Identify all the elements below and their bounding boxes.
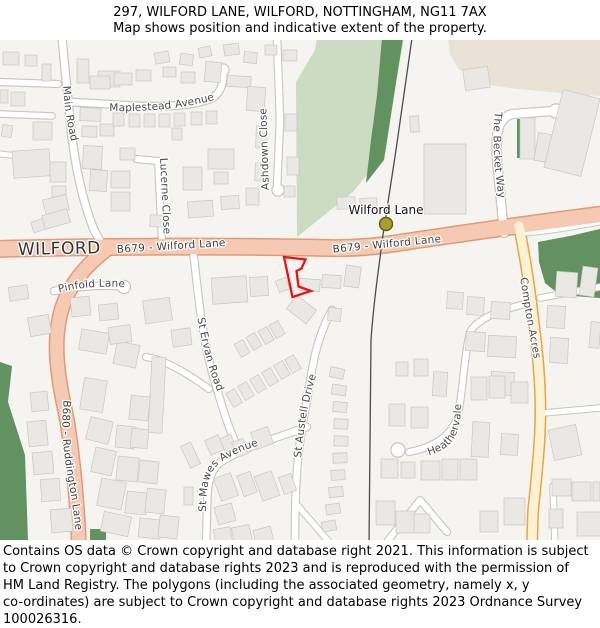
- building: [191, 112, 202, 125]
- building: [223, 43, 239, 56]
- building: [221, 196, 240, 210]
- footer-line: to Crown copyright and database rights 2…: [3, 560, 600, 577]
- building: [33, 122, 52, 140]
- building: [467, 297, 485, 316]
- building: [463, 66, 491, 90]
- building: [331, 384, 346, 396]
- building: [184, 487, 193, 505]
- building: [0, 90, 8, 103]
- building: [287, 157, 299, 175]
- building: [211, 276, 248, 304]
- cul-de-sac: [392, 444, 405, 457]
- building: [100, 124, 114, 136]
- building: [549, 509, 563, 528]
- building: [97, 478, 127, 510]
- building: [8, 285, 29, 302]
- building: [171, 328, 192, 347]
- building: [432, 372, 447, 397]
- copyright-footer: Contains OS data © Crown copyright and d…: [0, 540, 600, 628]
- building: [136, 70, 151, 81]
- building: [329, 486, 344, 497]
- building: [179, 53, 193, 66]
- building: [206, 111, 217, 124]
- building: [334, 419, 349, 430]
- building: [424, 144, 466, 214]
- building: [138, 460, 159, 484]
- building: [145, 488, 166, 514]
- building: [89, 169, 107, 191]
- building: [181, 72, 195, 83]
- west-road-2-road: [0, 114, 52, 116]
- building: [447, 292, 464, 310]
- building: [246, 188, 259, 205]
- building: [442, 459, 458, 480]
- building: [401, 462, 415, 478]
- property-address: 297, WILFORD LANE, WILFORD, NOTTINGHAM, …: [0, 0, 600, 21]
- building: [214, 172, 228, 184]
- building: [40, 478, 60, 501]
- building: [284, 186, 295, 197]
- building: [159, 114, 170, 127]
- building: [321, 520, 337, 532]
- building: [327, 307, 341, 321]
- building: [489, 376, 505, 398]
- building: [396, 511, 415, 533]
- tram-stop-label: Wilford Lane: [348, 203, 423, 217]
- building: [158, 515, 179, 539]
- building: [28, 314, 52, 336]
- building: [70, 296, 91, 317]
- building: [283, 50, 297, 61]
- building: [113, 341, 140, 368]
- building: [129, 114, 140, 127]
- building: [208, 149, 234, 169]
- property-map: Wilford LaneWILFORDB679 - Wilford LaneB6…: [0, 40, 600, 540]
- building: [389, 404, 405, 426]
- street-label: WILFORD: [18, 238, 101, 260]
- building: [243, 51, 257, 63]
- building: [414, 359, 428, 376]
- building: [421, 461, 440, 480]
- building: [114, 73, 132, 85]
- building: [572, 482, 591, 501]
- building: [3, 52, 19, 65]
- building: [491, 302, 511, 320]
- west-road-1-road: [0, 82, 58, 84]
- building: [265, 45, 277, 55]
- building: [285, 114, 297, 131]
- building: [411, 407, 428, 428]
- building: [471, 377, 487, 400]
- building: [11, 92, 25, 106]
- building: [204, 61, 222, 82]
- building: [250, 277, 269, 297]
- building: [130, 428, 149, 449]
- building: [25, 55, 37, 66]
- building: [381, 459, 398, 478]
- building: [172, 128, 182, 140]
- building: [487, 335, 516, 357]
- building: [333, 401, 348, 412]
- building: [50, 162, 66, 182]
- building: [552, 479, 571, 496]
- footer-line: co-ordinates) are subject to Crown copyr…: [3, 594, 600, 611]
- building: [82, 126, 97, 138]
- building: [187, 200, 213, 218]
- building: [466, 332, 486, 352]
- building: [120, 148, 135, 160]
- ashdown-close-road: [277, 40, 280, 188]
- building: [331, 470, 346, 481]
- building: [480, 511, 498, 532]
- building: [460, 459, 477, 480]
- building: [183, 167, 202, 190]
- building: [111, 192, 130, 211]
- building: [344, 265, 362, 288]
- tram-stop: [380, 218, 393, 231]
- building: [80, 108, 101, 122]
- map-caption: Map shows position and indicative extent…: [0, 21, 600, 37]
- building: [410, 116, 420, 132]
- building: [144, 114, 155, 127]
- building: [549, 338, 568, 364]
- building: [376, 501, 395, 525]
- building: [113, 113, 124, 126]
- building: [116, 456, 139, 482]
- building: [98, 303, 119, 321]
- building: [504, 498, 525, 525]
- building: [12, 149, 51, 179]
- building: [30, 391, 49, 412]
- building: [414, 514, 430, 533]
- building: [143, 297, 173, 324]
- building: [90, 76, 110, 89]
- building: [27, 420, 49, 447]
- building: [471, 422, 490, 458]
- building: [1, 124, 13, 137]
- building: [163, 67, 176, 77]
- footer-line: Contains OS data © Crown copyright and d…: [3, 543, 600, 560]
- building: [396, 362, 408, 376]
- building: [80, 377, 108, 412]
- building: [334, 436, 348, 446]
- building: [555, 271, 578, 297]
- building: [86, 417, 114, 445]
- building: [246, 86, 266, 111]
- building: [77, 59, 89, 83]
- building: [333, 453, 347, 463]
- building: [154, 51, 170, 64]
- building: [322, 275, 342, 289]
- building: [174, 113, 185, 126]
- footer-line: HM Land Registry. The polygons (includin…: [3, 577, 600, 594]
- building: [500, 434, 518, 456]
- building: [78, 329, 109, 355]
- building: [546, 306, 565, 329]
- building: [50, 508, 73, 532]
- building: [198, 46, 212, 58]
- building: [82, 146, 102, 170]
- building: [32, 451, 54, 475]
- building: [548, 424, 582, 460]
- building: [593, 482, 600, 501]
- cul-de-sac: [273, 185, 284, 196]
- building: [589, 322, 600, 349]
- building: [111, 171, 130, 188]
- building: [129, 395, 150, 421]
- building: [108, 325, 132, 345]
- building: [520, 118, 535, 159]
- building: [577, 512, 600, 536]
- building: [325, 503, 340, 515]
- listing-header: 297, WILFORD LANE, WILFORD, NOTTINGHAM, …: [0, 0, 600, 40]
- footer-line: 100026316.: [3, 611, 600, 628]
- building: [227, 75, 252, 87]
- building: [42, 64, 51, 81]
- building: [511, 382, 528, 403]
